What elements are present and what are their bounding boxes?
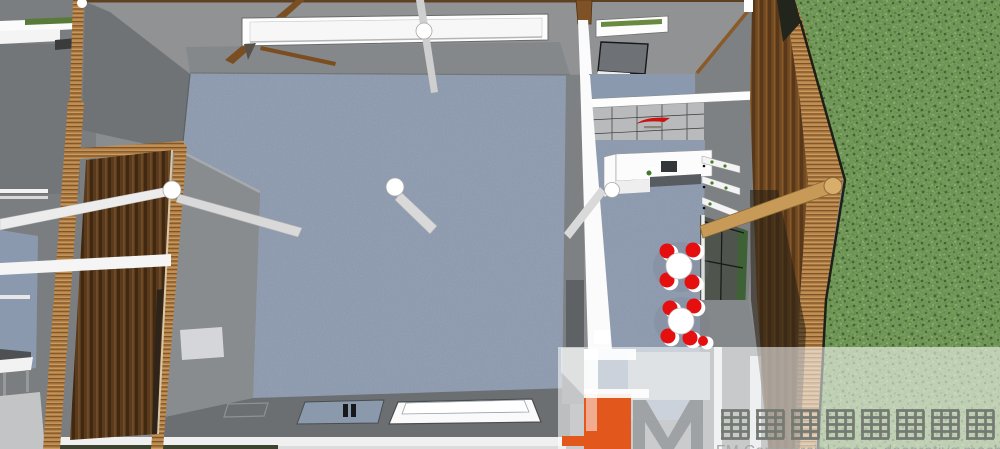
svg-text:FM Commercial space decorative: FM Commercial space decorative mechanism	[716, 443, 1000, 449]
